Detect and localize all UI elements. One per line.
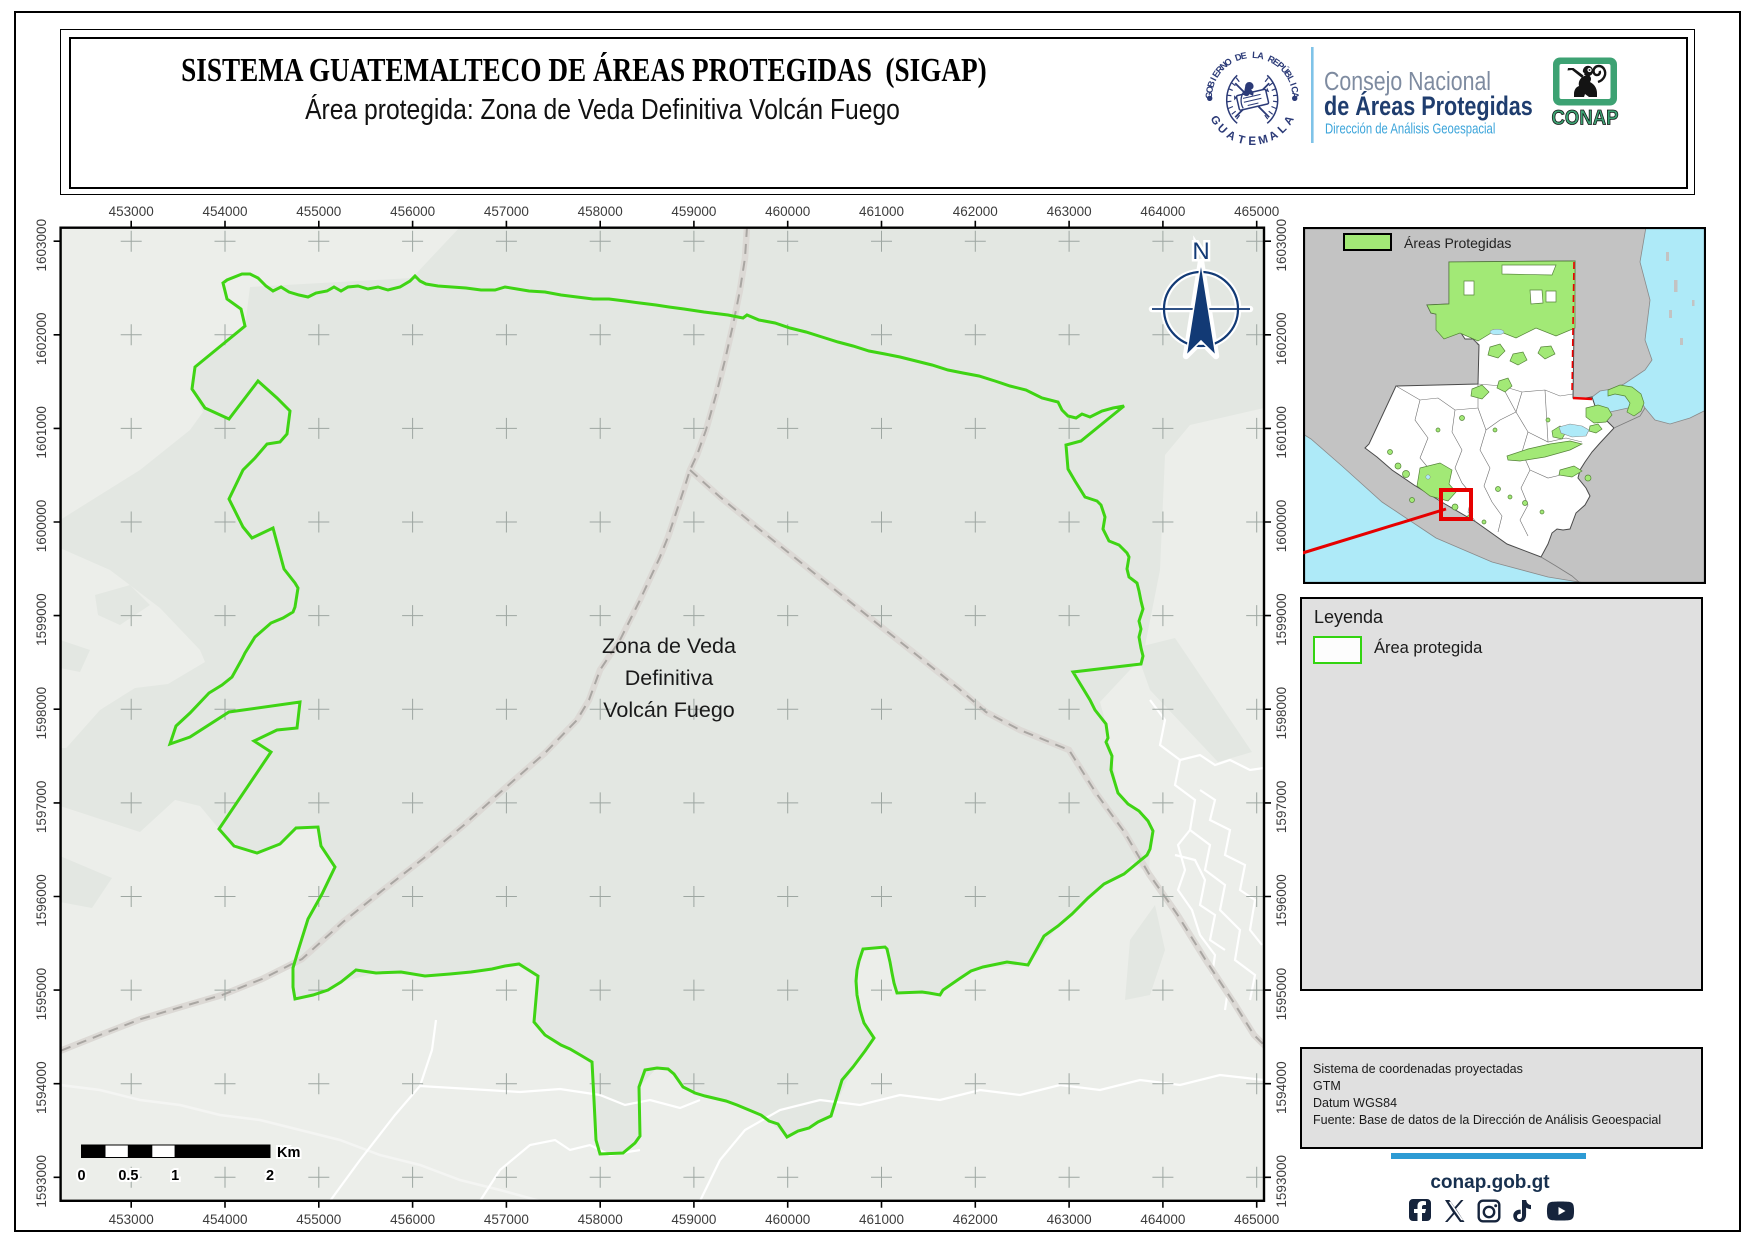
svg-text:Zona de Veda: Zona de Veda [602, 634, 736, 658]
svg-text:0.5: 0.5 [118, 1168, 138, 1184]
svg-text:1594000: 1594000 [1274, 1061, 1289, 1114]
svg-text:1594000: 1594000 [34, 1061, 49, 1114]
svg-text:1602000: 1602000 [34, 313, 49, 366]
svg-text:461000: 461000 [859, 204, 904, 219]
svg-text:1596000: 1596000 [1274, 874, 1289, 927]
svg-text:1596000: 1596000 [34, 874, 49, 927]
svg-text:1601000: 1601000 [34, 406, 49, 459]
svg-text:0: 0 [77, 1168, 85, 1184]
svg-text:465000: 465000 [1234, 204, 1279, 219]
svg-text:463000: 463000 [1047, 204, 1092, 219]
svg-text:1597000: 1597000 [34, 781, 49, 834]
svg-text:454000: 454000 [202, 1212, 247, 1227]
svg-text:1: 1 [171, 1168, 179, 1184]
svg-text:1595000: 1595000 [1274, 968, 1289, 1021]
svg-text:1593000: 1593000 [1274, 1155, 1289, 1208]
svg-text:Áreas Protegidas: Áreas Protegidas [1404, 235, 1511, 251]
svg-text:462000: 462000 [953, 204, 998, 219]
svg-text:2: 2 [266, 1168, 274, 1184]
svg-text:1599000: 1599000 [34, 593, 49, 646]
svg-text:457000: 457000 [484, 204, 529, 219]
svg-text:1602000: 1602000 [1274, 313, 1289, 366]
svg-text:457000: 457000 [484, 1212, 529, 1227]
svg-text:1597000: 1597000 [1274, 781, 1289, 834]
svg-text:453000: 453000 [109, 1212, 154, 1227]
svg-text:1595000: 1595000 [34, 968, 49, 1021]
svg-text:N: N [1192, 238, 1209, 265]
svg-text:1601000: 1601000 [1274, 406, 1289, 459]
svg-text:1593000: 1593000 [34, 1155, 49, 1208]
svg-text:462000: 462000 [953, 1212, 998, 1227]
svg-text:1603000: 1603000 [34, 219, 49, 272]
svg-text:463000: 463000 [1047, 1212, 1092, 1227]
svg-text:455000: 455000 [296, 1212, 341, 1227]
svg-text:Volcán Fuego: Volcán Fuego [603, 698, 735, 722]
svg-text:Definitiva: Definitiva [625, 666, 713, 690]
svg-text:461000: 461000 [859, 1212, 904, 1227]
svg-text:1600000: 1600000 [1274, 500, 1289, 553]
svg-text:464000: 464000 [1140, 204, 1185, 219]
svg-text:1603000: 1603000 [1274, 219, 1289, 272]
svg-text:460000: 460000 [765, 1212, 810, 1227]
svg-text:1598000: 1598000 [1274, 687, 1289, 740]
svg-text:464000: 464000 [1140, 1212, 1185, 1227]
svg-text:1598000: 1598000 [34, 687, 49, 740]
svg-text:454000: 454000 [202, 204, 247, 219]
svg-text:458000: 458000 [578, 204, 623, 219]
svg-text:459000: 459000 [671, 204, 716, 219]
svg-text:1600000: 1600000 [34, 500, 49, 553]
svg-text:456000: 456000 [390, 1212, 435, 1227]
svg-text:456000: 456000 [390, 204, 435, 219]
svg-text:460000: 460000 [765, 204, 810, 219]
svg-text:459000: 459000 [671, 1212, 716, 1227]
svg-text:455000: 455000 [296, 204, 341, 219]
svg-text:465000: 465000 [1234, 1212, 1279, 1227]
svg-text:453000: 453000 [109, 204, 154, 219]
svg-text:1599000: 1599000 [1274, 593, 1289, 646]
svg-text:Km: Km [277, 1145, 300, 1161]
svg-text:458000: 458000 [578, 1212, 623, 1227]
